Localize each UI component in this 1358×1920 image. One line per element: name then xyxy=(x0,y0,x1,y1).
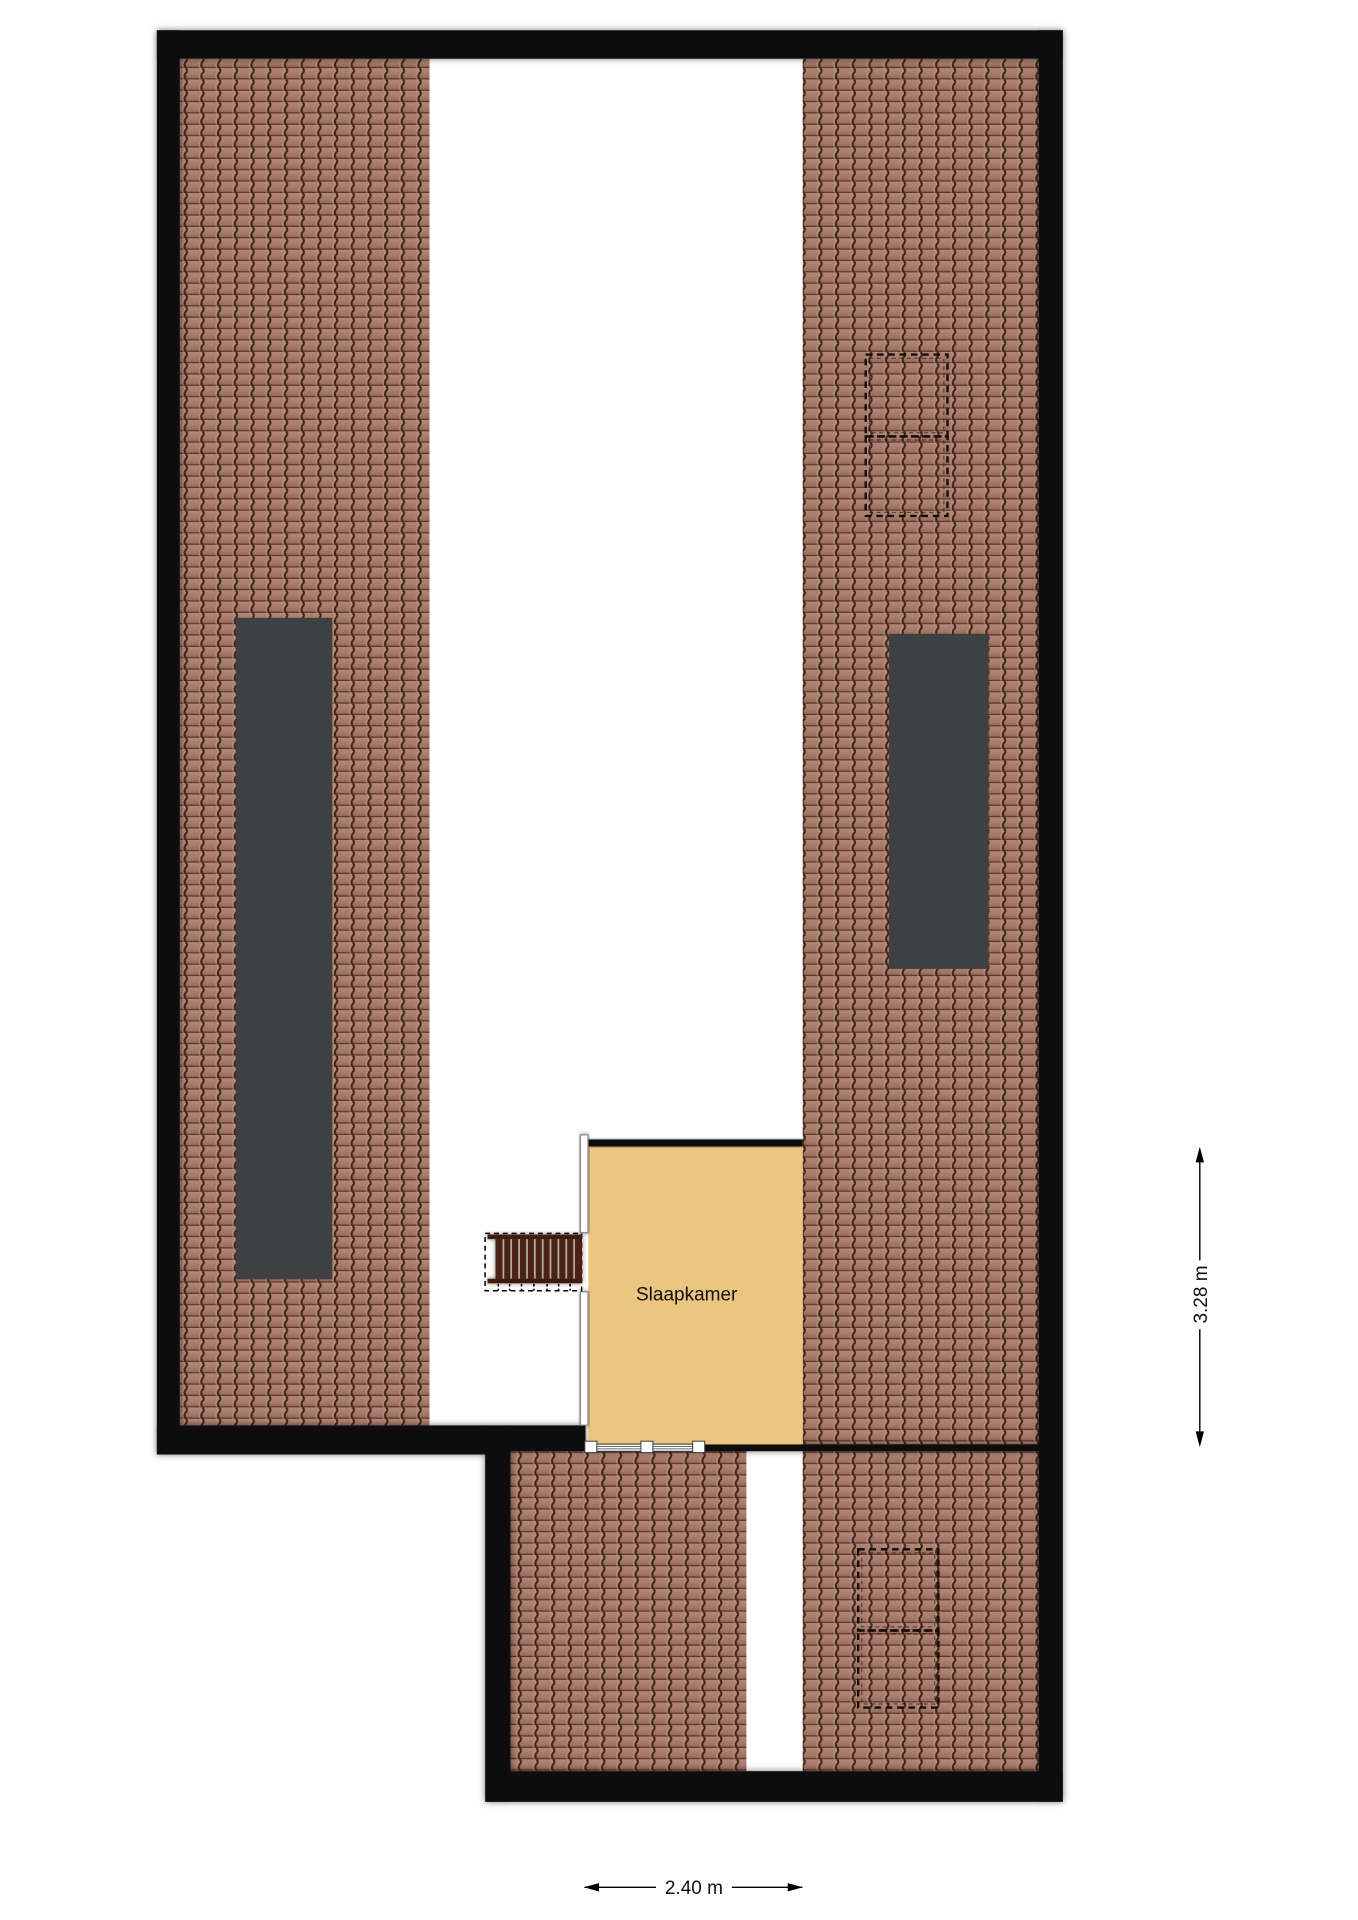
svg-text:3.28 m: 3.28 m xyxy=(1191,1265,1212,1323)
svg-text:Slaapkamer: Slaapkamer xyxy=(636,1284,738,1305)
svg-text:2.40 m: 2.40 m xyxy=(665,1878,723,1899)
